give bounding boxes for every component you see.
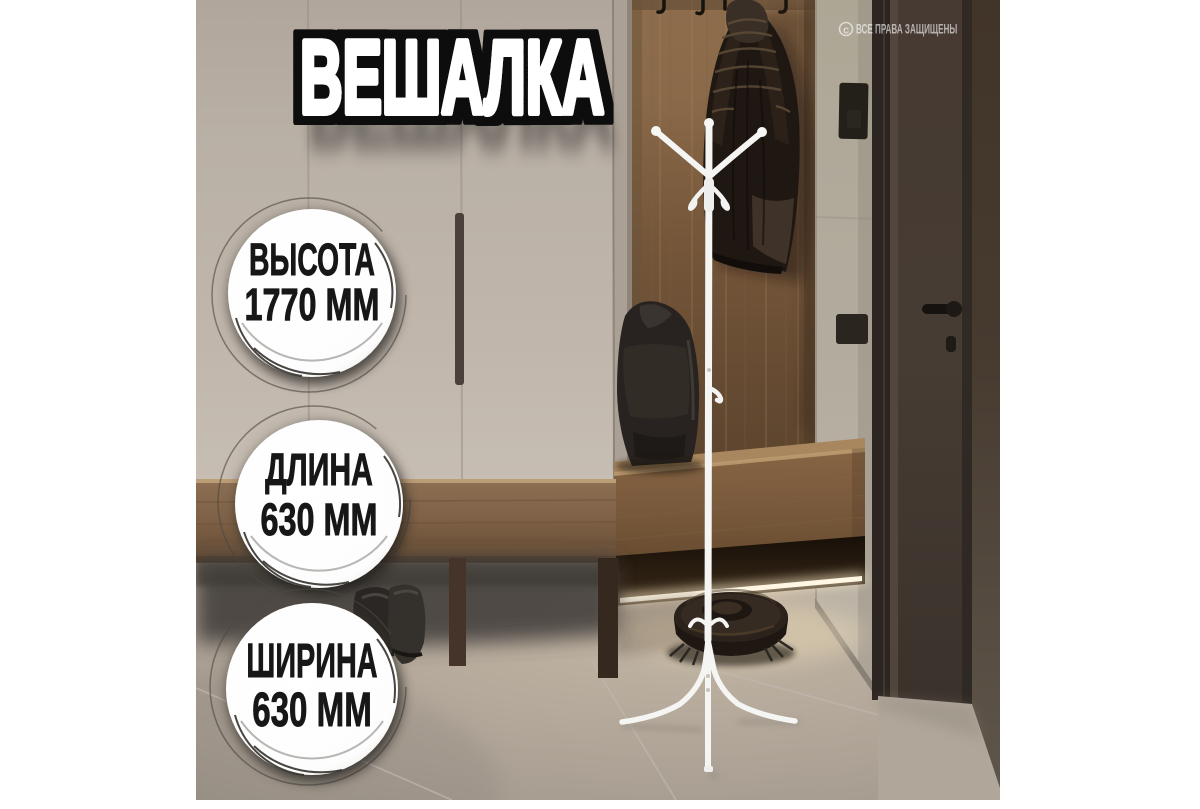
svg-text:ВЫСОТА: ВЫСОТА [249,234,375,284]
svg-text:c: c [843,25,849,37]
svg-text:630 ММ: 630 ММ [252,683,372,737]
svg-text:ДЛИНА: ДЛИНА [265,445,373,496]
svg-text:630 ММ: 630 ММ [261,496,378,545]
svg-text:ВСЕ ПРАВА ЗАЩИЩЕНЫ: ВСЕ ПРАВА ЗАЩИЩЕНЫ [856,23,957,38]
svg-text:1770 ММ: 1770 ММ [245,281,380,330]
svg-text:ШИРИНА: ШИРИНА [246,635,377,688]
svg-text:ВЕШАЛКА: ВЕШАЛКА [300,18,604,135]
